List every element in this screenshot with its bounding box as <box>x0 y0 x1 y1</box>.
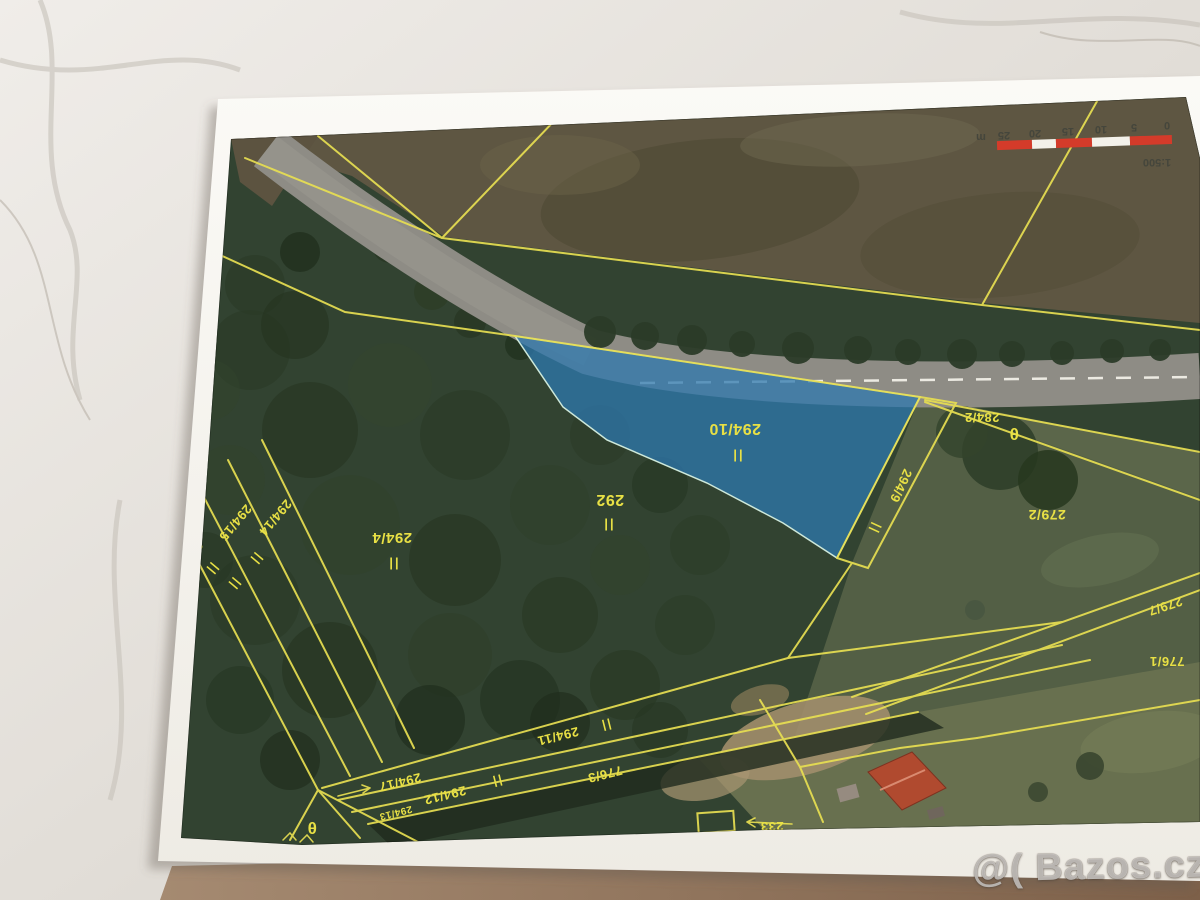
foliage-blob <box>999 341 1025 367</box>
foliage-blob <box>206 666 274 734</box>
foliage-blob <box>655 595 715 655</box>
scale-tick: 25 <box>998 129 1010 141</box>
parcel-label-284-2: 284/2 <box>964 410 999 425</box>
foliage-blob <box>261 291 329 359</box>
scale-bar-segment <box>1056 138 1092 148</box>
scale-tick: 0 <box>1164 119 1170 131</box>
foliage-blob <box>947 339 977 369</box>
foliage-blob <box>409 514 501 606</box>
scale-tick: 10 <box>1095 123 1107 135</box>
foliage-blob <box>1149 339 1171 361</box>
theta-symbol: θ <box>307 818 317 837</box>
scene: 294/10||292||294/4||294/15294/1429||||||… <box>0 0 1200 900</box>
foliage-blob <box>1050 341 1074 365</box>
foliage-blob <box>782 332 814 364</box>
parcel-label-294-10: 294/10 <box>709 420 761 437</box>
foliage-blob <box>420 390 510 480</box>
parcel-label-292: 292 <box>596 491 624 508</box>
scale-tick: 15 <box>1062 125 1074 137</box>
grassland-symbol: || <box>602 518 613 533</box>
foliage-blob <box>1076 752 1104 780</box>
foliage-blob <box>510 465 590 545</box>
foliage-blob <box>522 577 598 653</box>
foliage-blob <box>395 685 465 755</box>
scale-ratio: 1:500 <box>1143 156 1171 168</box>
foliage-blob <box>895 339 921 365</box>
foliage-blob <box>408 613 492 697</box>
scale-tick: 20 <box>1029 127 1041 139</box>
photo-of-cadastral-map: 294/10||292||294/4||294/15294/1429||||||… <box>0 0 1200 900</box>
scale-tick: m <box>976 131 986 143</box>
theta-symbol: θ <box>1009 424 1019 443</box>
parcel-label-776-1: 776/1 <box>1149 654 1184 669</box>
parcel-label-279-2: 279/2 <box>1028 507 1066 523</box>
foliage-blob <box>1100 339 1124 363</box>
scale-bar-segment <box>1032 139 1056 149</box>
foliage-blob <box>670 515 730 575</box>
grassland-symbol: || <box>387 557 398 572</box>
parcel-label-294-4: 294/4 <box>372 529 412 546</box>
scale-bar-segment <box>1092 136 1130 146</box>
scale-tick: 5 <box>1131 121 1137 133</box>
foliage-blob <box>282 622 378 718</box>
scale-bar-segment <box>1130 135 1172 145</box>
foliage-blob <box>1018 450 1078 510</box>
grassland-symbol: || <box>731 449 742 464</box>
foliage-blob <box>677 325 707 355</box>
foliage-blob <box>844 336 872 364</box>
map-photo: 294/10||292||294/4||294/15294/1429||||||… <box>150 80 1200 880</box>
foliage-blob <box>631 322 659 350</box>
foliage-blob <box>262 382 358 478</box>
foliage-blob <box>260 730 320 790</box>
foliage-blob <box>965 600 985 620</box>
foliage-blob <box>590 535 650 595</box>
foliage-blob <box>729 331 755 357</box>
foliage-blob <box>348 343 432 427</box>
foliage-blob <box>1028 782 1048 802</box>
foliage-blob <box>632 702 688 758</box>
foliage-blob <box>300 475 400 575</box>
foliage-blob <box>584 316 616 348</box>
watermark: @( Bazos.cz <box>972 843 1200 891</box>
foliage-blob <box>280 232 320 272</box>
